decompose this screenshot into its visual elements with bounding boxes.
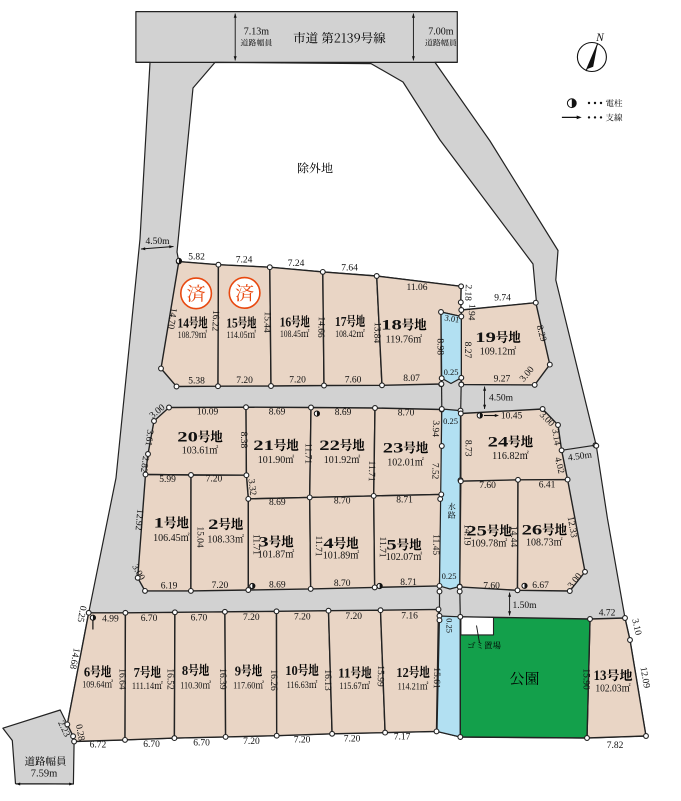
svg-text:108.42: 108.42 — [335, 330, 356, 340]
svg-text:115.67: 115.67 — [339, 682, 361, 692]
svg-text:2: 2 — [208, 517, 218, 533]
svg-text:8: 8 — [182, 664, 188, 679]
svg-text:7.20: 7.20 — [345, 612, 362, 622]
svg-text:6.67: 6.67 — [532, 581, 549, 591]
svg-text:117.60: 117.60 — [233, 682, 255, 692]
svg-text:15.90: 15.90 — [581, 668, 591, 690]
svg-text:0.25: 0.25 — [75, 605, 88, 623]
svg-text:14: 14 — [177, 317, 189, 332]
svg-text:108.73: 108.73 — [526, 538, 554, 549]
svg-text:5.82: 5.82 — [188, 253, 205, 263]
svg-text:14.19: 14.19 — [462, 524, 472, 546]
svg-text:111.14: 111.14 — [132, 682, 154, 692]
svg-text:4.99: 4.99 — [102, 614, 119, 624]
svg-text:1.50m: 1.50m — [513, 601, 538, 611]
svg-text:108.45: 108.45 — [280, 330, 301, 340]
svg-text:13: 13 — [594, 668, 607, 684]
svg-text:7.20: 7.20 — [243, 613, 260, 623]
svg-text:101.92: 101.92 — [324, 455, 352, 466]
svg-text:11.71: 11.71 — [313, 535, 323, 556]
svg-text:15.04: 15.04 — [194, 526, 204, 548]
svg-text:8.27: 8.27 — [462, 342, 472, 359]
svg-text:6.72: 6.72 — [90, 740, 107, 750]
svg-text:7: 7 — [134, 666, 140, 681]
svg-text:8.70: 8.70 — [334, 579, 351, 589]
svg-text:7.20: 7.20 — [236, 376, 253, 386]
svg-text:8.69: 8.69 — [335, 408, 352, 418]
svg-text:1.94: 1.94 — [466, 304, 477, 321]
svg-text:7.20: 7.20 — [206, 475, 223, 485]
svg-text:16.52: 16.52 — [165, 668, 175, 690]
svg-text:10.45: 10.45 — [501, 412, 523, 422]
svg-text:110.30: 110.30 — [180, 682, 202, 692]
svg-text:108.79: 108.79 — [178, 331, 199, 341]
svg-text:14.44: 14.44 — [508, 526, 518, 548]
svg-text:0.25: 0.25 — [444, 618, 454, 633]
svg-text:6.70: 6.70 — [143, 740, 160, 750]
svg-text:101.89: 101.89 — [323, 551, 351, 562]
svg-text:101.87: 101.87 — [258, 550, 286, 561]
svg-text:7.52: 7.52 — [429, 463, 439, 480]
svg-text:102.07: 102.07 — [386, 552, 414, 563]
svg-text:16.64: 16.64 — [117, 668, 127, 690]
svg-text:15.99: 15.99 — [375, 665, 385, 687]
svg-text:102.01: 102.01 — [387, 458, 415, 469]
svg-text:8.69: 8.69 — [269, 498, 286, 508]
svg-text:15: 15 — [226, 317, 238, 332]
svg-text:6.70: 6.70 — [141, 614, 158, 624]
svg-text:101.90: 101.90 — [258, 455, 286, 466]
svg-text:21: 21 — [253, 438, 274, 454]
svg-text:11.71: 11.71 — [302, 443, 312, 464]
svg-text:119.76: 119.76 — [386, 335, 414, 346]
svg-text:108.33: 108.33 — [207, 535, 235, 546]
svg-text:114.21: 114.21 — [398, 683, 420, 693]
svg-text:116.63: 116.63 — [287, 681, 309, 691]
svg-text:16.22: 16.22 — [209, 310, 220, 332]
svg-text:9.27: 9.27 — [494, 375, 511, 385]
svg-text:16: 16 — [280, 316, 292, 331]
svg-text:8.38: 8.38 — [238, 432, 248, 449]
svg-text:12: 12 — [396, 666, 409, 681]
svg-text:106.45: 106.45 — [153, 533, 181, 544]
svg-text:18: 18 — [381, 318, 402, 334]
svg-text:109.64: 109.64 — [82, 681, 104, 691]
svg-text:8.70: 8.70 — [334, 497, 351, 507]
svg-text:16.39: 16.39 — [217, 668, 227, 690]
svg-text:4.50m: 4.50m — [145, 237, 170, 247]
svg-text:8.07: 8.07 — [403, 374, 420, 384]
svg-text:10.09: 10.09 — [197, 407, 219, 417]
svg-text:9.74: 9.74 — [494, 294, 511, 304]
svg-text:11.71: 11.71 — [377, 536, 387, 557]
svg-text:11.45: 11.45 — [430, 534, 440, 555]
svg-text:1: 1 — [154, 516, 164, 532]
svg-text:8.69: 8.69 — [269, 580, 286, 590]
svg-text:8.69: 8.69 — [269, 407, 286, 417]
svg-text:8.70: 8.70 — [398, 408, 415, 418]
svg-text:7.60: 7.60 — [345, 375, 362, 385]
svg-text:0.25: 0.25 — [444, 367, 459, 377]
svg-text:7.82: 7.82 — [607, 741, 624, 751]
svg-text:4.50m: 4.50m — [489, 394, 514, 404]
svg-text:8.71: 8.71 — [400, 578, 417, 588]
svg-text:103.61: 103.61 — [182, 446, 210, 457]
svg-text:7.00m: 7.00m — [428, 27, 454, 38]
svg-text:8.98: 8.98 — [434, 338, 444, 355]
svg-text:22: 22 — [319, 438, 340, 454]
svg-text:0.25: 0.25 — [442, 571, 457, 581]
svg-text:10: 10 — [285, 664, 298, 679]
svg-text:7.64: 7.64 — [341, 264, 358, 274]
svg-text:114.05: 114.05 — [227, 331, 248, 341]
svg-text:6.19: 6.19 — [161, 581, 178, 591]
svg-text:8.71: 8.71 — [396, 496, 413, 506]
svg-text:7.20: 7.20 — [212, 581, 229, 591]
svg-text:20: 20 — [177, 430, 198, 446]
svg-text:15.44: 15.44 — [261, 311, 272, 333]
svg-text:6.41: 6.41 — [539, 481, 556, 491]
svg-text:3.32: 3.32 — [246, 478, 258, 496]
svg-text:24: 24 — [488, 435, 509, 451]
svg-text:5.99: 5.99 — [159, 475, 176, 485]
svg-text:102.03: 102.03 — [595, 684, 621, 695]
svg-text:26: 26 — [522, 523, 543, 539]
svg-text:13.84: 13.84 — [371, 322, 382, 344]
svg-text:7.13m: 7.13m — [244, 27, 270, 38]
svg-text:11.71: 11.71 — [251, 534, 261, 555]
svg-text:3.10: 3.10 — [629, 618, 643, 637]
svg-text:7.17: 7.17 — [394, 733, 411, 743]
svg-text:7.20: 7.20 — [294, 612, 311, 622]
svg-text:N: N — [595, 32, 605, 44]
svg-text:0.25: 0.25 — [443, 416, 458, 426]
svg-text:23: 23 — [383, 441, 404, 457]
svg-text:7.60: 7.60 — [483, 582, 500, 592]
svg-text:12.09: 12.09 — [637, 666, 651, 689]
svg-text:6: 6 — [84, 666, 90, 681]
svg-text:16.26: 16.26 — [268, 669, 278, 691]
svg-text:7.20: 7.20 — [344, 734, 361, 744]
svg-text:109.12: 109.12 — [480, 347, 508, 358]
svg-text:14.66: 14.66 — [315, 316, 326, 338]
svg-text:7.24: 7.24 — [236, 256, 253, 266]
svg-text:8.73: 8.73 — [463, 440, 473, 457]
svg-text:19: 19 — [475, 330, 496, 346]
svg-text:6.70: 6.70 — [191, 613, 208, 623]
svg-text:7.20: 7.20 — [289, 376, 306, 386]
svg-text:7.20: 7.20 — [294, 736, 311, 746]
svg-text:109.78: 109.78 — [471, 539, 499, 550]
svg-text:7.16: 7.16 — [401, 611, 418, 621]
svg-text:11.06: 11.06 — [406, 283, 427, 293]
svg-text:12.92: 12.92 — [133, 509, 145, 531]
svg-text:4.72: 4.72 — [599, 609, 616, 619]
svg-text:7.20: 7.20 — [243, 737, 260, 747]
svg-text:3.61: 3.61 — [142, 429, 154, 447]
svg-text:116.82: 116.82 — [492, 451, 519, 462]
svg-text:5.38: 5.38 — [188, 376, 205, 386]
svg-text:7.59m: 7.59m — [31, 769, 58, 780]
svg-text:7.24: 7.24 — [288, 259, 305, 269]
svg-text:15.61: 15.61 — [431, 667, 441, 689]
svg-text:17: 17 — [335, 315, 347, 330]
svg-text:11.71: 11.71 — [366, 460, 376, 481]
svg-text:16.13: 16.13 — [322, 669, 332, 691]
svg-text:6.70: 6.70 — [193, 738, 210, 748]
svg-text:11: 11 — [338, 667, 351, 682]
svg-text:3.94: 3.94 — [430, 420, 441, 437]
svg-text:7.60: 7.60 — [479, 481, 496, 491]
svg-text:9: 9 — [235, 665, 241, 680]
